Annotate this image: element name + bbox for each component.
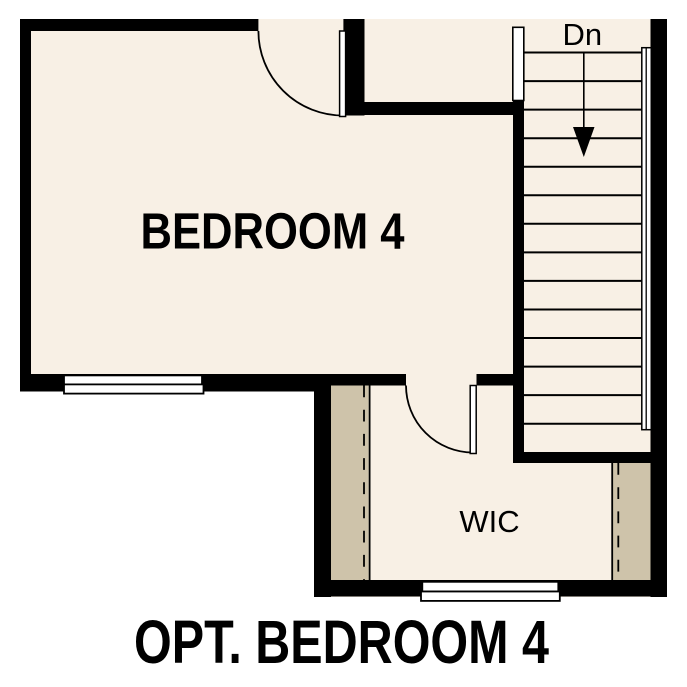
svg-text:OPT. BEDROOM 4: OPT. BEDROOM 4 [134, 608, 549, 676]
svg-text:Dn: Dn [563, 17, 603, 52]
svg-text:BEDROOM 4: BEDROOM 4 [141, 203, 406, 260]
svg-text:WIC: WIC [459, 504, 519, 539]
